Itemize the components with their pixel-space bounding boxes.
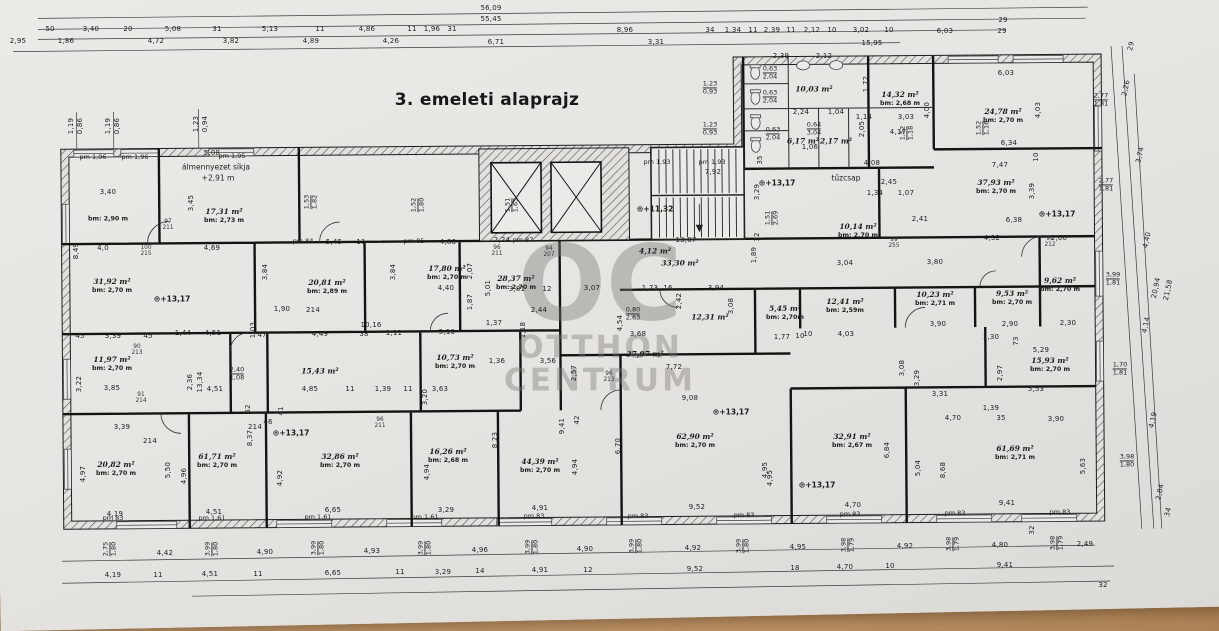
dim-label: 38 [359, 330, 368, 338]
dim-label: 3,94 [708, 284, 724, 292]
level-marker: ⊕+11,32 [637, 205, 674, 214]
parapet-height-label: pm 83 [103, 514, 124, 522]
dim-label: 1,37 [486, 319, 502, 327]
dim-label: 4,92 [276, 470, 284, 486]
dim-label: 52 [244, 404, 252, 413]
dim-label: 41 [277, 406, 285, 415]
room-label: 32,86 m²bm: 2,70 m [320, 452, 360, 469]
window-size-label: 1,512,69 [764, 211, 779, 225]
dim-label: 0,94 [201, 116, 209, 132]
dim-label: 6,70 [614, 438, 622, 454]
dim-label: 3,03 [898, 113, 914, 121]
dim-label: 46 [263, 418, 272, 426]
dim-label: 9,41 [558, 418, 566, 434]
parapet-height-label: pm 83 [628, 512, 649, 520]
level-marker-icon: ⊕ [154, 295, 161, 304]
dim-label: 50 [45, 25, 54, 33]
dim-label: 5,13 [262, 25, 278, 33]
window-size-label: 3,991,80 [204, 542, 219, 556]
dim-label: 4,86 [440, 238, 456, 246]
dim-label: 47 [257, 331, 266, 339]
room-label: 10,14 m²bm: 2,70 m [838, 222, 878, 239]
dim-label: 3,29 [913, 370, 921, 386]
dim-label: 45 [143, 332, 152, 340]
dim-label: 3,39 [114, 423, 130, 431]
window-size-label: 3,991,80 [417, 541, 432, 555]
dim-label: 4,80 [992, 541, 1008, 549]
dim-label: 4,54 [616, 315, 624, 331]
dim-label: 2,45 [881, 178, 897, 186]
dim-label: 214 [143, 437, 157, 445]
dim-label: 1,04 [828, 108, 844, 116]
room-label: 16,26 m²bm: 2,68 m [428, 447, 468, 464]
dim-label: 10,16 [360, 321, 381, 329]
dim-label: 1,73 [642, 284, 658, 292]
dim-label: 5,04 [914, 460, 922, 476]
room-label: 6,17 m² [787, 137, 819, 146]
parapet-height-label: pm 1,93 [699, 158, 726, 166]
room-label: 9,53 m²bm: 2,70 m [992, 289, 1032, 306]
dim-label: 1,90 [274, 305, 290, 313]
room-label: 44,39 m²bm: 2,70 m [520, 457, 560, 474]
room-label: 10,73 m²bm: 2,70 m [435, 353, 475, 370]
dim-label: 4,32 [984, 234, 1000, 242]
dim-label: 4,40 [438, 284, 454, 292]
dim-label: 10 [884, 26, 893, 34]
room-label: 10,03 m² [795, 85, 832, 94]
annotation-label: tűzcsap [831, 174, 860, 183]
dim-label: 16 [663, 284, 672, 292]
window-size-label: 0,802,63 [626, 306, 640, 321]
dim-label: 11 [748, 26, 757, 34]
dim-label: 73 [1012, 336, 1020, 345]
dim-label: 4,86 [359, 25, 375, 33]
dim-label: 6,84 [883, 442, 891, 458]
dim-label: 3,90 [1048, 415, 1064, 423]
dim-label: 11 [345, 385, 354, 393]
window-size-label: 3,991,80 [524, 540, 539, 554]
dim-label: 1,39 [375, 385, 391, 393]
parapet-height-label: pm 1,61 [199, 514, 226, 522]
dim-label: 2,39 [764, 26, 780, 34]
room-label: 37,93 m²bm: 2,70 m [976, 178, 1016, 195]
dim-label: 10 [827, 26, 836, 34]
dim-label: 11 [403, 385, 412, 393]
level-marker-icon: ⊕ [637, 205, 644, 214]
dim-label: 12 [542, 285, 551, 293]
dim-label: 1,07 [898, 189, 914, 197]
dim-label: 9,41 [999, 499, 1015, 507]
dim-label: 11 [407, 25, 416, 33]
window-size-label: 1,521,80 [410, 198, 425, 212]
window-size-label: 2,771,81 [1094, 92, 1108, 107]
parapet-height-label: pm 1,96 [80, 153, 107, 161]
dim-label: 3,40 [83, 25, 99, 33]
door-size-label: 96211 [374, 418, 385, 430]
room-label: 20,81 m²bm: 2,89 m [307, 278, 347, 295]
dim-label: 1,34 [725, 26, 741, 34]
dim-label: 3,82 [223, 37, 239, 45]
dim-label: 13,34 [196, 371, 204, 392]
dim-label: 4,90 [577, 545, 593, 553]
dim-label: 7,72 [666, 363, 682, 371]
dim-label: 3,90 [930, 320, 946, 328]
room-label: 9,62 m²bm: 2,70 m [1040, 276, 1080, 293]
dim-label: 1,36 [489, 357, 505, 365]
room-label: 15,43 m² [301, 367, 338, 376]
dim-label: 3,08 [898, 360, 906, 376]
window-size-label: 1,701,81 [1113, 361, 1127, 376]
window-size-label: 3,991,80 [735, 539, 750, 553]
level-marker-icon: ⊕ [713, 408, 720, 417]
dim-label: 3,31 [932, 390, 948, 398]
room-label: 33,30 m² [661, 259, 698, 268]
dim-label: 0,86 [76, 118, 84, 134]
dim-label: 3,84 [261, 264, 269, 280]
dim-label: 4,70 [945, 414, 961, 422]
dim-label: 2,90 [1002, 320, 1018, 328]
dim-label: 1,44 [175, 329, 191, 337]
dim-label: 56,09 [480, 4, 501, 12]
dim-label: 29 [998, 16, 1007, 24]
dim-label: 5,63 [1079, 458, 1087, 474]
dim-label: 4,08 [864, 159, 880, 167]
dim-label: 4,70 [837, 563, 853, 571]
dim-label: 4,19 [105, 571, 121, 579]
parapet-height-label: pm 1,95 [219, 152, 246, 160]
room-label: 62,90 m²bm: 2,70 m [675, 432, 715, 449]
room-label: 31,92 m²bm: 2,70 m [92, 277, 132, 294]
dim-label: 2,97 [996, 365, 1004, 381]
dim-label: 10 [1032, 152, 1040, 161]
dim-label: 1,86 [58, 37, 74, 45]
level-marker-icon: ⊕ [799, 481, 806, 490]
dim-label: 20 [123, 25, 132, 33]
door-size-label: 94207 [543, 247, 554, 259]
dim-label: 3,63 [432, 385, 448, 393]
room-label: 61,71 m²bm: 2,70 m [197, 452, 237, 469]
dim-label: 29 [997, 27, 1006, 35]
dim-label: 4,03 [838, 330, 854, 338]
dim-label: 9,08 [682, 394, 698, 402]
dim-label: 3,29 [438, 506, 454, 514]
dim-label: 10 [885, 562, 894, 570]
dim-label: 1,87 [466, 294, 474, 310]
dim-label: 4,96 [472, 546, 488, 554]
door-arcs [147, 215, 1043, 434]
window-size-label: 2,771,81 [1099, 177, 1113, 192]
room-label: 12,31 m² [691, 313, 728, 322]
level-marker: ⊕+13,17 [799, 481, 836, 490]
dim-label: 3,20 [421, 389, 429, 405]
dim-label: 8,37 [246, 430, 254, 446]
dim-label: 4,0 [97, 244, 109, 252]
door-size-label: 96211 [491, 246, 502, 258]
door-size-label: 90213 [131, 345, 142, 357]
dim-label: 4,51 [205, 329, 221, 337]
dim-label: 3,68 [630, 330, 646, 338]
window-size-label: 2,401,08 [230, 366, 244, 381]
dim-label: 3,07 [584, 284, 600, 292]
dim-label: 214 [248, 423, 262, 431]
dim-label: 4,94 [423, 464, 431, 480]
window-size-label: 3,981,79 [840, 538, 855, 552]
dim-label: 6,65 [325, 569, 341, 577]
dim-label: 5,08 [165, 25, 181, 33]
door-size-label: 99255 [888, 238, 899, 250]
parapet-height-label: pm 1,93 [644, 158, 671, 166]
dim-label: 3,39 [105, 332, 121, 340]
dim-label: 32 [1028, 525, 1036, 534]
dim-label: 31 [212, 25, 221, 33]
dim-label: 4,96 [180, 468, 188, 484]
dim-label: 13,07 [675, 236, 696, 244]
dim-label: 1,96 [424, 25, 440, 33]
dim-label: 3,29 [435, 568, 451, 576]
window-size-label: 3,991,81 [1106, 271, 1120, 286]
level-marker: ⊕+13,17 [1039, 210, 1076, 219]
dim-label: 8,96 [617, 26, 633, 34]
window-size-label: 0,632,04 [766, 126, 780, 141]
room-label: 15,93 m²bm: 2,70 m [1030, 356, 1070, 373]
room-label: 10,23 m²bm: 2,71 m [915, 290, 955, 307]
room-label: 24,78 m²bm: 2,70 m [983, 107, 1023, 124]
dim-label: 1,19 [67, 118, 75, 134]
room-label: 14,32 m²bm: 2,68 m [880, 90, 920, 107]
dim-label: 5,10 [439, 328, 455, 336]
dim-label: 214 [306, 306, 320, 314]
window-size-label: 1,230,93 [703, 80, 717, 95]
dim-label: 5,01 [484, 280, 492, 296]
room-label: 5,45 m²bm: 2,70m [766, 304, 804, 321]
dim-label: 5,50 [164, 462, 172, 478]
parapet-height-label: pm 83 [734, 511, 755, 519]
dim-label: 4,72 [148, 37, 164, 45]
dim-label: 1,14 [856, 113, 872, 121]
window-size-label: 3,981,80 [1120, 453, 1134, 468]
dim-label: 2,36 [186, 374, 194, 390]
dim-label: 4,93 [364, 547, 380, 555]
dim-label: 2,12 [816, 52, 832, 60]
dim-label: 4,49 [312, 330, 328, 338]
dim-label: 4,89 [303, 37, 319, 45]
parapet-height-label: pm 85 [404, 237, 425, 245]
dim-label: 14 [475, 567, 484, 575]
dim-label: 15,95 [861, 39, 882, 47]
dim-label: 4,95 [761, 462, 769, 478]
dim-label: 35 [996, 414, 1005, 422]
dim-label: 6,71 [488, 38, 504, 46]
dim-label: 2,44 [531, 306, 547, 314]
dim-label: 11 [395, 568, 404, 576]
dim-label: 3,80 [927, 258, 943, 266]
window-size-label: 0,632,04 [763, 89, 777, 104]
dim-label: 1,18 [519, 322, 527, 338]
dim-label: 4,00 [923, 102, 931, 118]
dim-label: 10 [795, 332, 804, 340]
dim-label: 18 [790, 564, 799, 572]
dim-label: 1,11 [386, 329, 402, 337]
dim-label: 3,31 [648, 38, 664, 46]
level-marker: ⊕+13,17 [154, 295, 191, 304]
dim-label: 11 [253, 570, 262, 578]
window-size-label: 3,991,80 [628, 539, 643, 553]
dim-label: 42 [573, 415, 581, 424]
dim-label: 11 [786, 26, 795, 34]
parapet-height-label: pm 1,96 [122, 153, 149, 161]
dim-label: 8,68 [939, 462, 947, 478]
dim-label: 4,51 [202, 570, 218, 578]
dim-label: 9,41 [997, 561, 1013, 569]
dim-label: 1,77 [774, 333, 790, 341]
dim-label: 2,49 [1077, 540, 1093, 548]
window-size-label: 3,991,80 [310, 541, 325, 555]
parapet-height-label: pm 83 [524, 512, 545, 520]
dim-label: 55,45 [480, 15, 501, 23]
door-size-label: 90212 [1044, 237, 1055, 249]
dim-label: 35 [756, 155, 764, 164]
level-marker-icon: ⊕ [759, 179, 766, 188]
door-size-label: 96213 [603, 372, 614, 384]
dim-label: 7,47 [992, 161, 1008, 169]
page-title: 3. emeleti alaprajz [395, 90, 579, 110]
dim-label: 5,53 [1028, 385, 1044, 393]
floor-plan: 3. emeleti alaprajz OC OTTHON CENTRUM 56… [0, 0, 1219, 601]
annotation-label: +2,91 m [202, 174, 235, 183]
dim-label: 3,85 [104, 384, 120, 392]
dim-label: 2,42 [675, 293, 683, 309]
dim-label: 11 [356, 238, 365, 246]
dim-label: 9,52 [689, 503, 705, 511]
room-label: bm: 2,90 m [88, 214, 128, 222]
dim-label: 2,12 [804, 26, 820, 34]
dim-label: 2,07 [466, 263, 474, 279]
room-label: 17,31 m²bm: 2,73 m [204, 207, 244, 224]
dim-label: 2,05 [858, 121, 866, 137]
dim-label: 4,26 [383, 37, 399, 45]
room-label: 11,97 m²bm: 2,70 m [92, 355, 132, 372]
room-label: 20,82 m²bm: 2,70 m [96, 460, 136, 477]
parapet-height-label: pm 83 [840, 510, 861, 518]
dim-label: 1,23 [192, 116, 200, 132]
dim-label: 3,39 [1028, 183, 1036, 199]
dim-label: 12 [583, 566, 592, 574]
dim-label: 7,92 [705, 168, 721, 176]
dim-label: 3,56 [540, 357, 556, 365]
dim-label: 3,84 [389, 264, 397, 280]
dim-label: 11 [315, 25, 324, 33]
dim-label: 32 [753, 232, 761, 241]
dim-label: 2,41 [912, 215, 928, 223]
dim-label: 4,85 [302, 385, 318, 393]
window-size-label: 3,981,79 [1049, 536, 1064, 550]
elevator-shafts [479, 148, 630, 241]
dim-label: 4,92 [897, 542, 913, 550]
level-marker-icon: ⊕ [1039, 210, 1046, 219]
parapet-height-label: pm 1,61 [412, 513, 439, 521]
level-marker: ⊕+13,17 [713, 408, 750, 417]
parapet-height-label: pm 83 [945, 509, 966, 517]
window-size-label: 1,511,63 [504, 198, 519, 212]
dim-label: 1,89 [750, 247, 758, 263]
room-label: 27,97 m² [626, 350, 663, 359]
annotation-label: álmennyezet síkja [182, 163, 250, 172]
dim-label: 4,69 [204, 244, 220, 252]
dim-label: 32 [1098, 581, 1107, 589]
window-size-label: 1,230,93 [703, 121, 717, 136]
window-size-label: 0,643,04 [807, 121, 821, 136]
room-label: 2,17 m² [820, 137, 852, 146]
dim-label: 6,38 [1006, 216, 1022, 224]
dim-label: 2,30 [1060, 319, 1076, 327]
parapet-height-label: pm 87 [513, 236, 534, 244]
dim-label: 4,94 [571, 459, 579, 475]
dim-label: 5,29 [1033, 346, 1049, 354]
dim-label: 34 [705, 26, 714, 34]
level-marker: ⊕+13,17 [273, 429, 310, 438]
dim-label: 2,24 [494, 236, 510, 244]
dim-label: 9,52 [687, 565, 703, 573]
room-label: 32,91 m²bm: 2,67 m [832, 432, 872, 449]
dim-label: 1,03 [249, 322, 257, 338]
dim-label: 4,91 [532, 504, 548, 512]
room-label: 17,80 m²bm: 2,70 m [427, 264, 467, 281]
parapet-height-label: pm 1,61 [305, 513, 332, 521]
dim-label: 5,45 [326, 238, 342, 246]
dim-label: 4,92 [685, 544, 701, 552]
dim-label: 4,70 [845, 501, 861, 509]
dim-label: 6,03 [937, 27, 953, 35]
door-size-label: 100215 [140, 246, 151, 258]
dim-label: 2,24 [793, 108, 809, 116]
dim-label: 3,40 [100, 188, 116, 196]
parapet-height-label: pm 84 [293, 237, 314, 245]
dim-label: 8,23 [491, 432, 499, 448]
door-size-label: 91214 [135, 393, 146, 405]
dim-label: 1,34 [867, 189, 883, 197]
dim-label: 3,02 [853, 26, 869, 34]
window-size-label: 2,751,80 [102, 542, 117, 556]
dim-label: 8,49 [72, 243, 80, 259]
window-size-label: 1,521,18 [899, 126, 914, 140]
level-marker: ⊕+13,17 [759, 179, 796, 188]
dim-label: 3,22 [75, 376, 83, 392]
room-label: 4,12 m² [639, 247, 671, 256]
dim-label: 2,95 [10, 37, 26, 45]
dim-label: 1,39 [983, 404, 999, 412]
dim-label: 11 [153, 571, 162, 579]
dim-label: 4,97 [79, 466, 87, 482]
dim-label: 6,34 [1001, 139, 1017, 147]
dim-label: 4,91 [532, 566, 548, 574]
room-label: 12,41 m²bm: 2,59m [826, 297, 864, 314]
window-size-label: 0,632,04 [763, 65, 777, 80]
window-size-label: 1,531,82 [303, 195, 318, 209]
level-marker-icon: ⊕ [273, 429, 280, 438]
dim-label: 45 [75, 332, 84, 340]
room-label: 61,69 m²bm: 2,71 m [995, 444, 1035, 461]
window-size-label: 3,981,79 [945, 537, 960, 551]
dim-label: 4,95 [790, 543, 806, 551]
dim-label: 1,72 [862, 76, 870, 92]
dim-label: 4,42 [157, 549, 173, 557]
dim-label: 31 [447, 25, 456, 33]
parapet-height-label: pm 83 [1050, 508, 1071, 516]
door-size-label: 97211 [162, 220, 173, 232]
dim-label: 4,51 [207, 385, 223, 393]
dim-label: 2,39 [773, 52, 789, 60]
dim-label: 4,90 [257, 548, 273, 556]
